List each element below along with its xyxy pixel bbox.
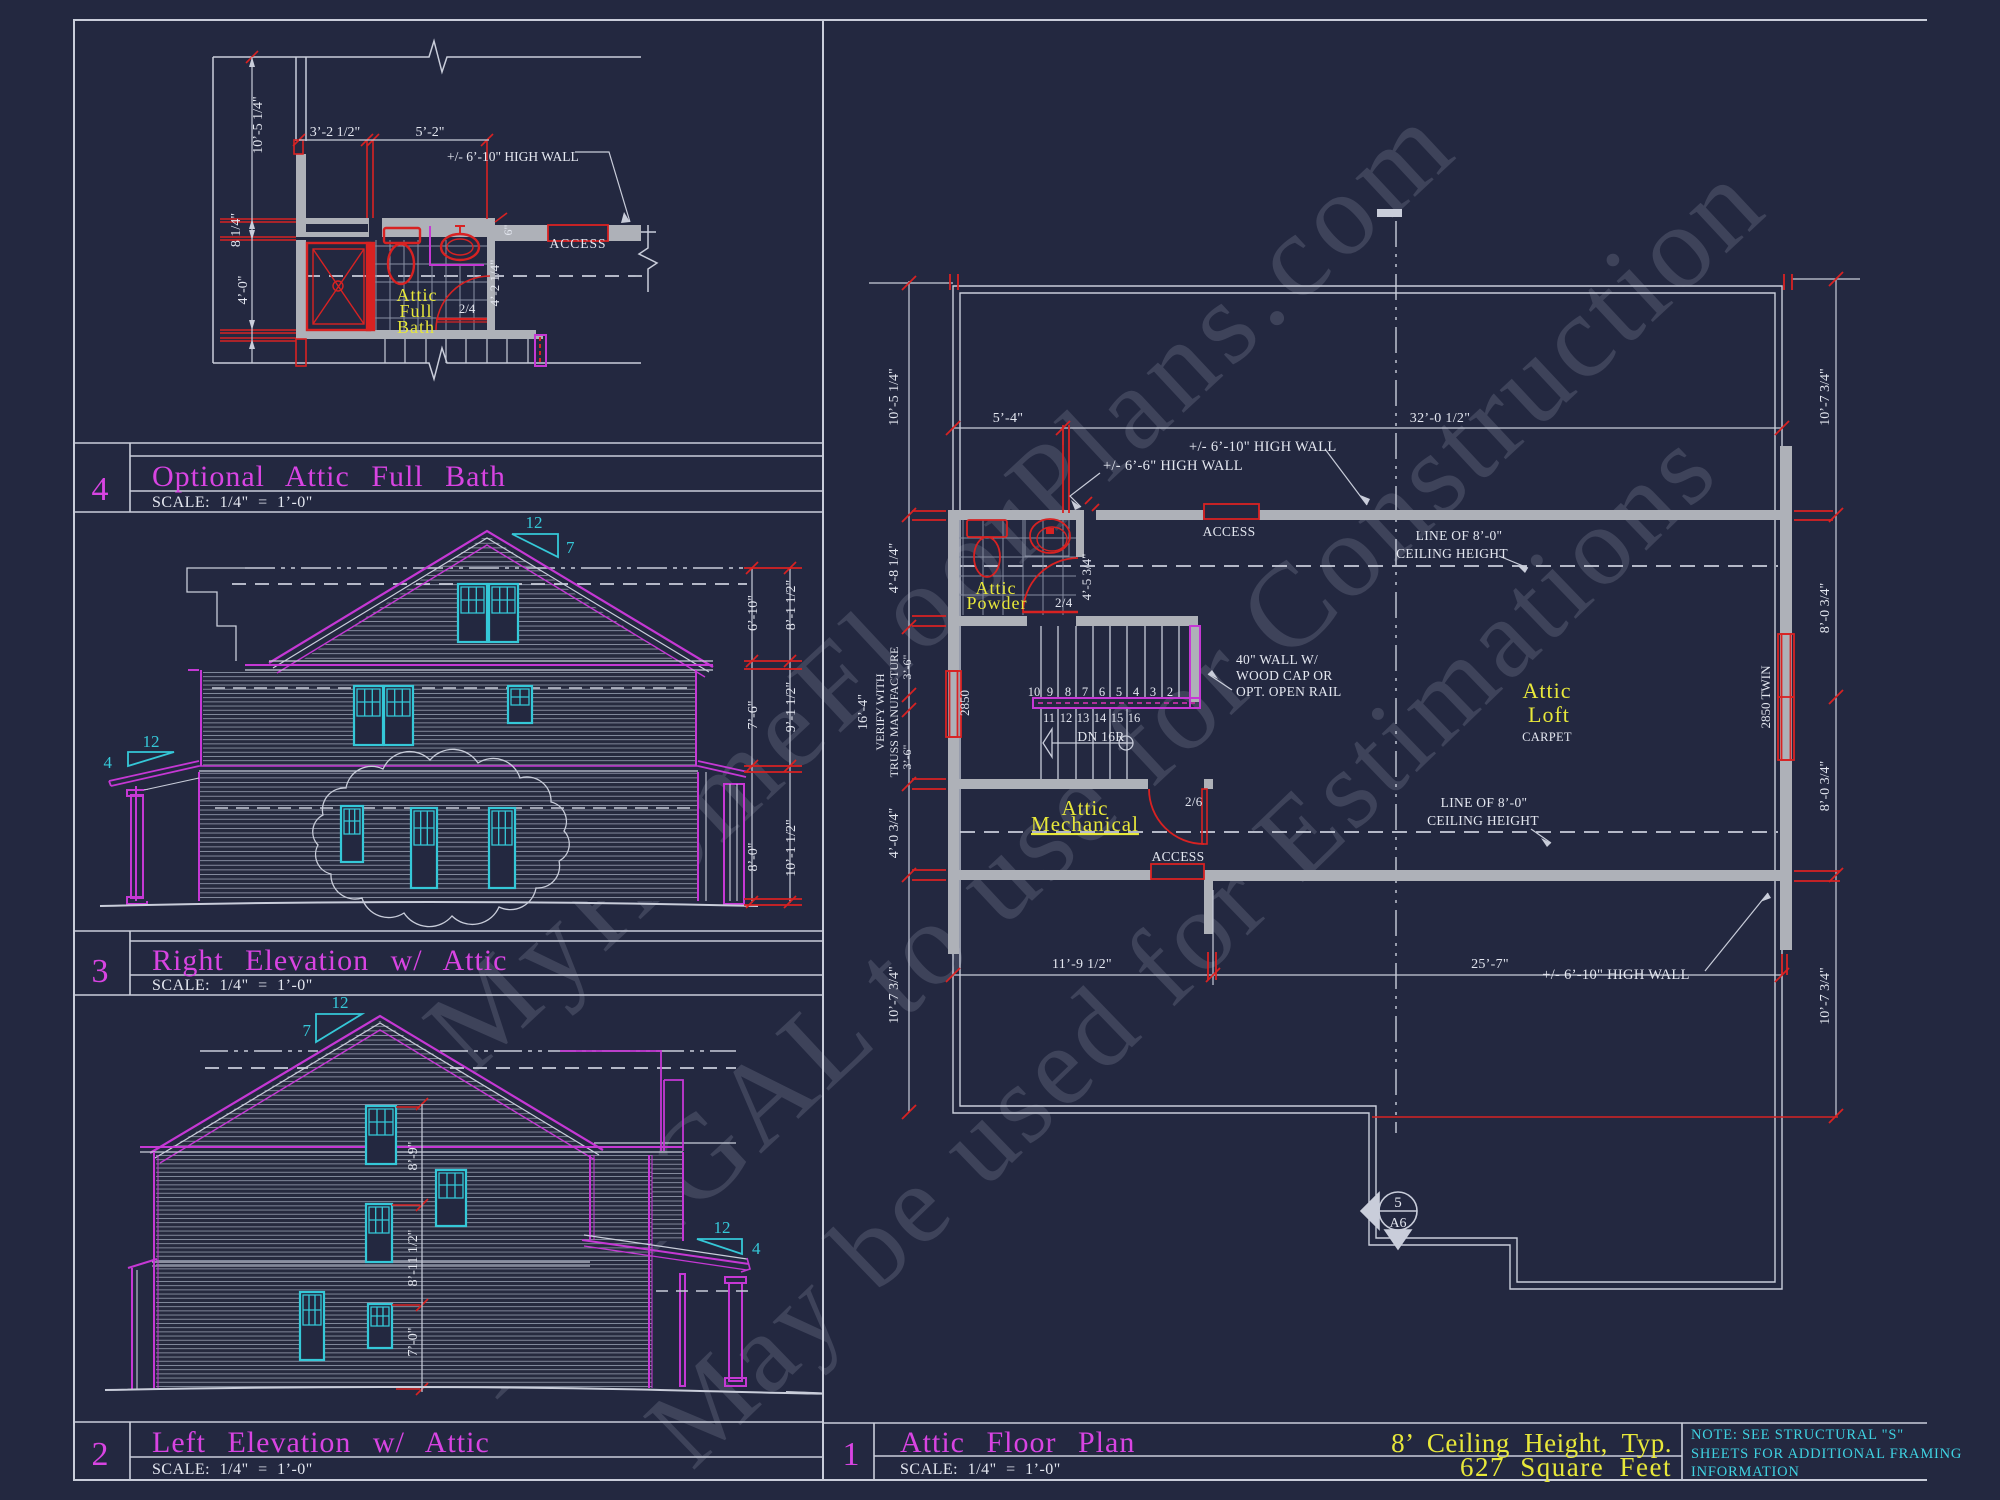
svg-text:12: 12 [332, 993, 349, 1012]
svg-text:9’-1 1/2": 9’-1 1/2" [784, 682, 799, 732]
svg-text:627 Square Feet: 627 Square Feet [1460, 1452, 1672, 1482]
svg-text:6’-10": 6’-10" [746, 595, 761, 631]
svg-text:8 1/4": 8 1/4" [229, 213, 244, 247]
svg-text:CEILING HEIGHT: CEILING HEIGHT [1396, 546, 1508, 561]
svg-text:VERIFY WITH: VERIFY WITH [873, 673, 887, 750]
svg-text:12: 12 [1060, 711, 1073, 725]
svg-text:5: 5 [1116, 685, 1122, 699]
svg-text:8’-11 1/2": 8’-11 1/2" [406, 1230, 421, 1287]
svg-text:8’-1 1/2": 8’-1 1/2" [784, 580, 799, 630]
svg-text:4’-5 3/4": 4’-5 3/4" [1079, 554, 1094, 601]
svg-text:SCALE: 1/4" = 1’-0": SCALE: 1/4" = 1’-0" [152, 977, 313, 994]
svg-text:SCALE: 1/4" = 1’-0": SCALE: 1/4" = 1’-0" [900, 1461, 1061, 1478]
svg-text:TRUSS MANUFACTURE: TRUSS MANUFACTURE [887, 647, 901, 778]
svg-text:WOOD CAP OR: WOOD CAP OR [1236, 668, 1333, 683]
svg-text:11: 11 [1043, 711, 1055, 725]
svg-text:13: 13 [1077, 711, 1090, 725]
svg-text:32’-0 1/2": 32’-0 1/2" [1410, 411, 1470, 426]
svg-text:2850 TWIN: 2850 TWIN [1758, 665, 1773, 729]
svg-text:5’-2": 5’-2" [415, 125, 444, 140]
svg-text:A6: A6 [1389, 1216, 1406, 1231]
svg-text:3’-2 1/2": 3’-2 1/2" [310, 125, 360, 140]
svg-text:LINE OF 8’-0": LINE OF 8’-0" [1441, 795, 1528, 810]
svg-text:4’-8 1/4": 4’-8 1/4" [887, 543, 902, 593]
svg-text:SCALE: 1/4" = 1’-0": SCALE: 1/4" = 1’-0" [152, 494, 313, 511]
svg-text:4: 4 [752, 1239, 761, 1258]
svg-text:2/6: 2/6 [1185, 794, 1203, 809]
svg-text:7’-0": 7’-0" [406, 1327, 421, 1356]
svg-text:10’-7 3/4": 10’-7 3/4" [1818, 967, 1833, 1024]
svg-text:+/- 6’-10" HIGH WALL: +/- 6’-10" HIGH WALL [447, 149, 579, 164]
svg-text:Optional Attic Full Bath: Optional Attic Full Bath [152, 460, 506, 493]
svg-text:7: 7 [1082, 685, 1088, 699]
svg-text:2: 2 [92, 1436, 109, 1473]
svg-text:8’-0": 8’-0" [746, 842, 761, 871]
svg-text:ACCESS: ACCESS [1203, 524, 1256, 539]
svg-text:+/- 6’-10" HIGH WALL: +/- 6’-10" HIGH WALL [1542, 967, 1689, 983]
svg-text:10’-1 1/2": 10’-1 1/2" [784, 819, 799, 876]
svg-text:DN 16R: DN 16R [1077, 729, 1124, 744]
svg-text:Bath: Bath [397, 317, 435, 337]
svg-text:CEILING HEIGHT: CEILING HEIGHT [1427, 813, 1539, 828]
svg-text:4’-0 3/4": 4’-0 3/4" [887, 808, 902, 858]
svg-text:16: 16 [1128, 711, 1141, 725]
svg-text:6: 6 [1099, 685, 1105, 699]
svg-text:8’-0 3/4": 8’-0 3/4" [1818, 583, 1833, 633]
svg-text:Right Elevation w/ Attic: Right Elevation w/ Attic [152, 944, 507, 977]
svg-text:8: 8 [1065, 685, 1071, 699]
svg-text:3’-6": 3’-6" [900, 744, 914, 769]
svg-text:7: 7 [303, 1021, 312, 1040]
svg-text:10’-7 3/4": 10’-7 3/4" [1818, 368, 1833, 425]
svg-text:1: 1 [843, 1436, 860, 1473]
svg-text:Attic: Attic [1523, 678, 1572, 703]
svg-text:5’-4": 5’-4" [993, 411, 1024, 426]
svg-text:9: 9 [1047, 685, 1053, 699]
svg-text:5: 5 [1394, 1195, 1402, 1211]
svg-text:4: 4 [92, 471, 109, 508]
svg-text:3: 3 [92, 953, 109, 990]
svg-text:6": 6" [501, 224, 515, 235]
svg-text:OPT. OPEN RAIL: OPT. OPEN RAIL [1236, 684, 1342, 699]
svg-text:Mechanical: Mechanical [1031, 812, 1139, 836]
svg-text:40" WALL W/: 40" WALL W/ [1236, 652, 1318, 667]
svg-text:25’-7": 25’-7" [1471, 957, 1509, 972]
svg-text:Attic Floor Plan: Attic Floor Plan [900, 1426, 1135, 1459]
svg-text:15: 15 [1111, 711, 1124, 725]
svg-text:7: 7 [566, 538, 575, 557]
svg-text:SHEETS FOR ADDITIONAL FRAMING: SHEETS FOR ADDITIONAL FRAMING [1691, 1446, 1962, 1462]
svg-text:INFORMATION: INFORMATION [1691, 1464, 1800, 1480]
svg-text:12: 12 [714, 1218, 731, 1237]
svg-text:10’-7 3/4": 10’-7 3/4" [887, 966, 902, 1023]
svg-text:3’-6": 3’-6" [900, 654, 914, 679]
svg-text:ACCESS: ACCESS [549, 236, 606, 251]
svg-text:4: 4 [1133, 685, 1140, 699]
svg-text:4: 4 [104, 753, 113, 772]
svg-text:8’-0 3/4": 8’-0 3/4" [1818, 761, 1833, 811]
svg-text:12: 12 [526, 513, 543, 532]
svg-text:NOTE: SEE STRUCTURAL "S": NOTE: SEE STRUCTURAL "S" [1691, 1427, 1904, 1443]
svg-text:7’-6": 7’-6" [746, 700, 761, 729]
svg-text:8’-9": 8’-9" [406, 1141, 421, 1170]
svg-text:2850: 2850 [957, 690, 972, 716]
svg-text:2: 2 [1167, 685, 1173, 699]
svg-text:Powder: Powder [967, 593, 1028, 613]
svg-text:11’-9 1/2": 11’-9 1/2" [1052, 957, 1112, 972]
svg-text:+/- 6’-6" HIGH WALL: +/- 6’-6" HIGH WALL [1103, 458, 1243, 474]
svg-text:2/4: 2/4 [459, 301, 476, 316]
svg-text:Loft: Loft [1528, 702, 1570, 727]
svg-text:+/- 6’-10" HIGH WALL: +/- 6’-10" HIGH WALL [1189, 439, 1336, 455]
svg-text:10: 10 [1028, 685, 1041, 699]
svg-text:4’-0": 4’-0" [236, 275, 251, 304]
svg-text:3: 3 [1150, 685, 1156, 699]
svg-text:2/4: 2/4 [1055, 595, 1073, 610]
svg-text:12: 12 [143, 732, 160, 751]
svg-text:CARPET: CARPET [1522, 730, 1572, 744]
svg-text:14: 14 [1094, 711, 1107, 725]
svg-text:Left Elevation w/ Attic: Left Elevation w/ Attic [152, 1426, 490, 1459]
svg-text:ACCESS: ACCESS [1152, 849, 1205, 864]
svg-text:10’-5 1/4": 10’-5 1/4" [251, 96, 266, 153]
svg-text:SCALE: 1/4" = 1’-0": SCALE: 1/4" = 1’-0" [152, 1461, 313, 1478]
svg-text:16’-4": 16’-4" [856, 694, 871, 730]
svg-text:10’-5 1/4": 10’-5 1/4" [887, 368, 902, 425]
svg-text:LINE OF 8’-0": LINE OF 8’-0" [1416, 528, 1503, 543]
svg-text:4’-2 1/4": 4’-2 1/4" [487, 260, 502, 307]
